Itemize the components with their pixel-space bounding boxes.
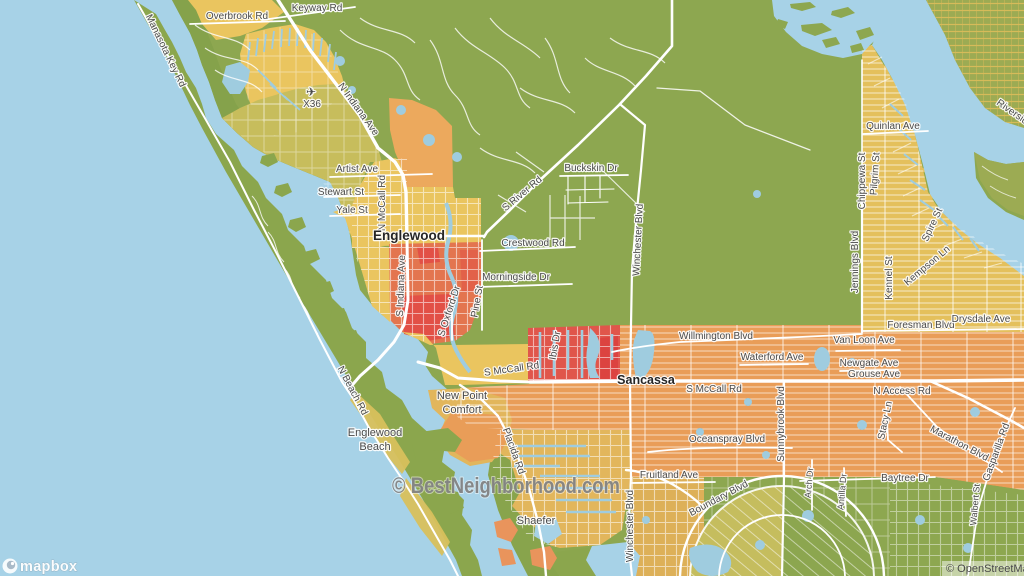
svg-text:S Indiana Ave: S Indiana Ave — [395, 255, 408, 317]
svg-text:X36: X36 — [303, 99, 321, 110]
svg-text:© OpenStreetMap: © OpenStreetMap — [946, 563, 1024, 575]
svg-text:Baytree Dr: Baytree Dr — [881, 473, 929, 484]
svg-text:Willmington Blvd: Willmington Blvd — [679, 331, 753, 342]
svg-text:S McCall Rd: S McCall Rd — [686, 384, 742, 395]
svg-text:Fruitland Ave: Fruitland Ave — [640, 470, 699, 481]
svg-text:Winchester Blvd: Winchester Blvd — [625, 490, 636, 562]
svg-text:Quinlan Ave: Quinlan Ave — [866, 121, 920, 132]
svg-text:Sancassa: Sancassa — [617, 373, 676, 387]
svg-text:Kennel St: Kennel St — [884, 256, 895, 300]
svg-text:Shaefer: Shaefer — [517, 515, 556, 527]
svg-text:Morningside Dr: Morningside Dr — [482, 272, 550, 283]
svg-text:New Point: New Point — [437, 390, 487, 402]
svg-text:Jennings Blvd: Jennings Blvd — [850, 231, 861, 293]
svg-text:N Access Rd: N Access Rd — [873, 386, 930, 397]
svg-text:Englewood: Englewood — [373, 228, 445, 243]
svg-text:Oceanspray Blvd: Oceanspray Blvd — [689, 434, 765, 445]
svg-text:Chippewa St: Chippewa St — [857, 152, 868, 209]
svg-text:Newgate Ave: Newgate Ave — [840, 358, 899, 369]
svg-text:Drysdale Ave: Drysdale Ave — [952, 314, 1011, 325]
svg-text:Comfort: Comfort — [442, 404, 481, 416]
svg-text:Overbrook Rd: Overbrook Rd — [206, 11, 268, 22]
svg-text:Yale St: Yale St — [336, 205, 368, 216]
svg-text:Artist Ave: Artist Ave — [336, 164, 378, 175]
svg-text:Van Loon Ave: Van Loon Ave — [833, 335, 895, 346]
svg-text:Sunnybrook Blvd: Sunnybrook Blvd — [776, 386, 787, 462]
svg-text:Grouse Ave: Grouse Ave — [848, 369, 901, 380]
svg-text:N McCall Rd: N McCall Rd — [377, 175, 388, 231]
svg-text:Foresman Blvd: Foresman Blvd — [887, 320, 954, 331]
svg-text:Stewart St: Stewart St — [318, 187, 364, 198]
svg-text:✈: ✈ — [306, 85, 316, 99]
svg-text:Englewood: Englewood — [348, 427, 402, 439]
svg-text:© BestNeighborhood.com: © BestNeighborhood.com — [392, 475, 620, 499]
svg-text:Crestwood Rd: Crestwood Rd — [501, 238, 564, 249]
svg-text:Keyway Rd: Keyway Rd — [292, 3, 343, 14]
svg-text:Waterford Ave: Waterford Ave — [741, 352, 804, 363]
svg-text:Beach: Beach — [359, 441, 390, 453]
svg-text:mapbox: mapbox — [20, 559, 77, 575]
svg-text:Buckskin Dr: Buckskin Dr — [564, 163, 618, 174]
